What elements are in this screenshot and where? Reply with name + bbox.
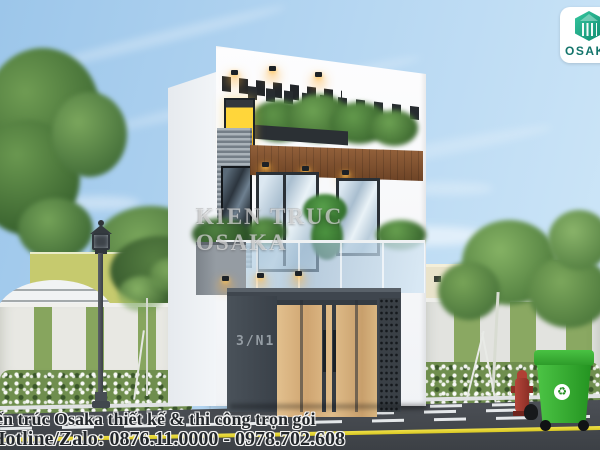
gate-door-stile — [355, 300, 358, 412]
logo-brand-text: OSAKA — [565, 44, 600, 58]
soffit-downlight — [302, 166, 309, 171]
gate-door-stile — [300, 300, 303, 412]
bin-wheel — [578, 420, 589, 431]
tree-foliage — [18, 198, 93, 260]
hexagon-buildings-logo — [575, 11, 600, 41]
bin-lid — [534, 350, 594, 366]
tree-foliage — [52, 92, 127, 177]
lamp-pole — [98, 253, 103, 401]
street-lamp — [86, 220, 118, 410]
logo-roof-facet — [580, 14, 598, 21]
rooftop-downlight — [231, 70, 238, 75]
gate-left-pillar — [227, 296, 277, 412]
rooftop-downlight — [315, 72, 322, 77]
render-canvas: 3/N1 ♻ KIEN TRUC OSAKA Kiến trúc Osaka t… — [0, 0, 600, 450]
logo-building-bars — [582, 23, 597, 36]
gate-door-handle — [333, 330, 336, 372]
bin-wheel — [540, 420, 551, 431]
recycle-bin: ♻ — [534, 350, 596, 430]
lamp-lantern — [92, 233, 110, 250]
caption-line1: Kiến trúc Osaka thiết kế & thi công trọn… — [0, 409, 316, 430]
rooftop-downlight — [269, 66, 276, 71]
rooftop-plants — [370, 110, 418, 146]
soffit-downlight — [342, 170, 349, 175]
center-watermark: KIEN TRUC OSAKA — [196, 204, 416, 256]
sapling-trunk — [146, 298, 148, 396]
house-number-plate: 3/N1 — [236, 334, 280, 349]
hydrant-cap — [511, 386, 515, 393]
soffit-downlight — [262, 162, 269, 167]
caption-line2: Hotline/Zalo: 0876.11.0000 - 0978.702.60… — [0, 428, 345, 450]
logo-badge: OSAKA — [560, 7, 600, 63]
hydrant-cap — [529, 386, 533, 393]
garage-gate: 3/N1 — [227, 288, 401, 412]
tree-foliage — [438, 262, 500, 320]
gate-wood-doors — [277, 300, 377, 417]
gate-door-handle — [323, 330, 326, 372]
gate-perforated-panel — [379, 298, 400, 412]
fascia-downlight — [257, 273, 264, 278]
recycle-icon: ♻ — [554, 384, 570, 400]
fascia-downlight — [222, 276, 229, 281]
fascia-downlight — [295, 271, 302, 276]
lamp-base — [92, 401, 110, 408]
